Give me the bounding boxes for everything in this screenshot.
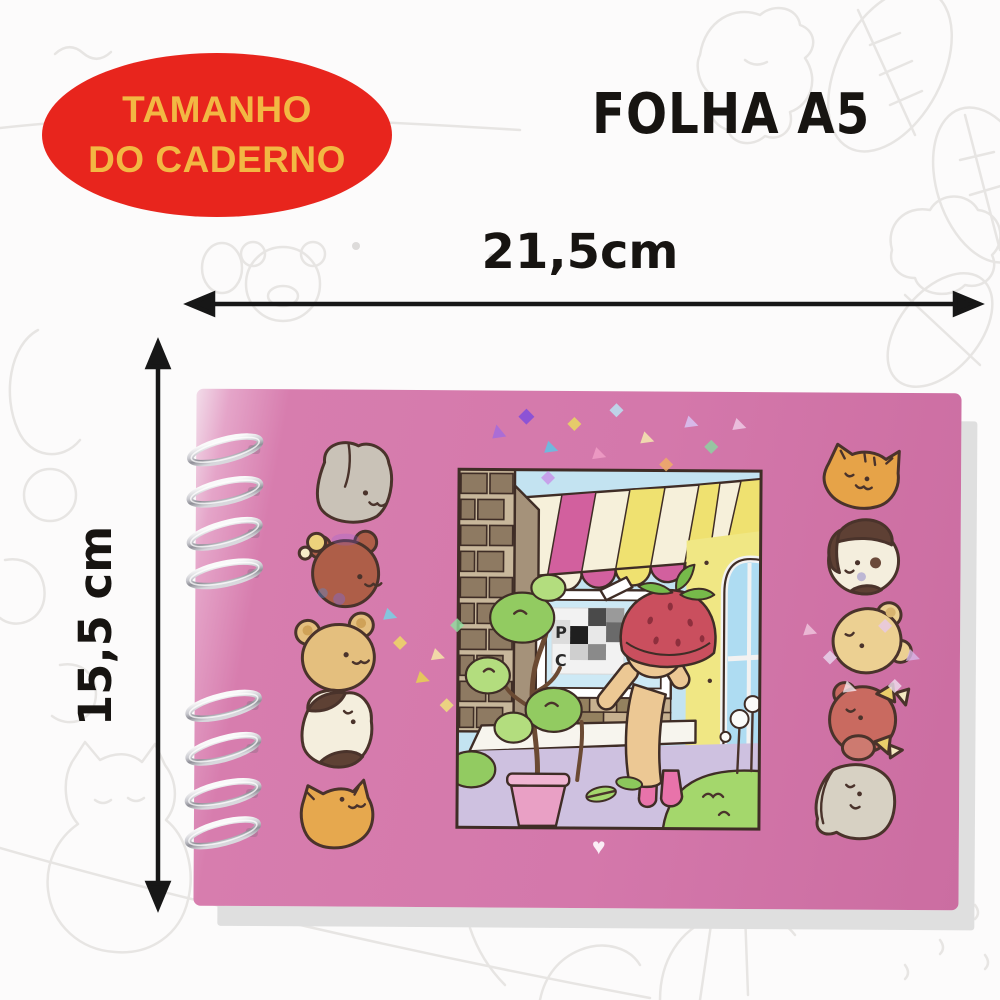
spiral-coil	[186, 814, 261, 852]
heart-mark: ♥	[576, 833, 622, 860]
red-bear-with-bows-icon	[829, 683, 908, 760]
plant-pot	[511, 786, 565, 826]
width-arrow-left-head	[189, 294, 213, 314]
plant-pot-rim	[507, 774, 569, 786]
orange-cat-icon	[297, 778, 377, 852]
bear-right-boot	[661, 771, 682, 807]
gray-puppy-icon	[814, 762, 897, 841]
white-dog-brown-ears-icon	[828, 519, 898, 594]
notebook-cover: .st{stroke:#4a332b;stroke-width:3;stroke…	[193, 389, 961, 911]
spiral-coil	[186, 729, 261, 768]
spiral-coil	[186, 688, 261, 724]
cream-bear-icon	[828, 600, 914, 678]
left-animal-column	[293, 439, 396, 853]
right-animal-column	[814, 441, 915, 841]
product-size-infographic: TAMANHO DO CADERNO FOLHA A5 21,5cm 15,5 …	[0, 0, 1000, 1000]
spiral-coil	[188, 474, 263, 509]
spiral-coil	[188, 431, 263, 469]
spiral-coil	[187, 557, 262, 591]
spiral-binding	[185, 431, 262, 852]
spiral-coil	[187, 515, 262, 554]
censored-sign: P C	[552, 608, 624, 674]
height-arrow-top-head	[148, 343, 168, 367]
width-arrow-right-head	[955, 294, 979, 314]
height-arrow-bottom-head	[148, 883, 168, 907]
sign-letter-top: P	[555, 623, 567, 642]
brown-spotted-cat-icon	[300, 688, 375, 769]
tan-bear-icon	[294, 612, 379, 694]
gray-bunny-icon	[314, 439, 395, 526]
center-illustration-panel: P C	[447, 469, 775, 829]
spiral-coil	[186, 776, 261, 811]
orange-tabby-cat-icon	[820, 441, 902, 513]
